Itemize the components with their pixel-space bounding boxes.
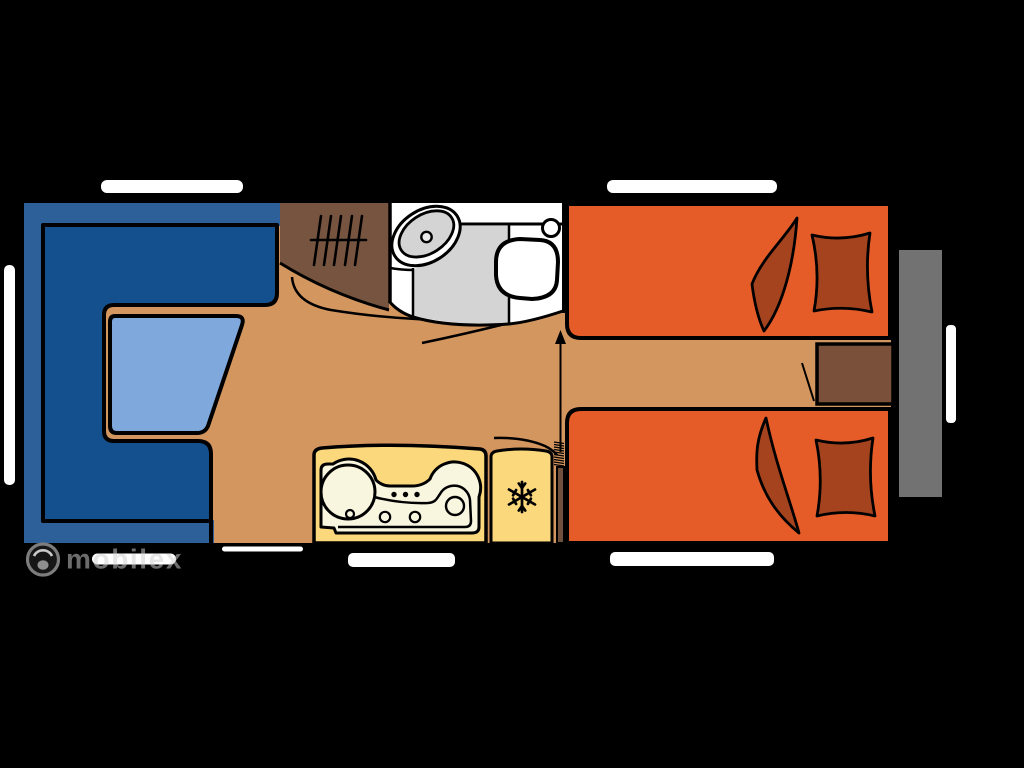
svg-text:mobilex: mobilex: [66, 544, 183, 575]
